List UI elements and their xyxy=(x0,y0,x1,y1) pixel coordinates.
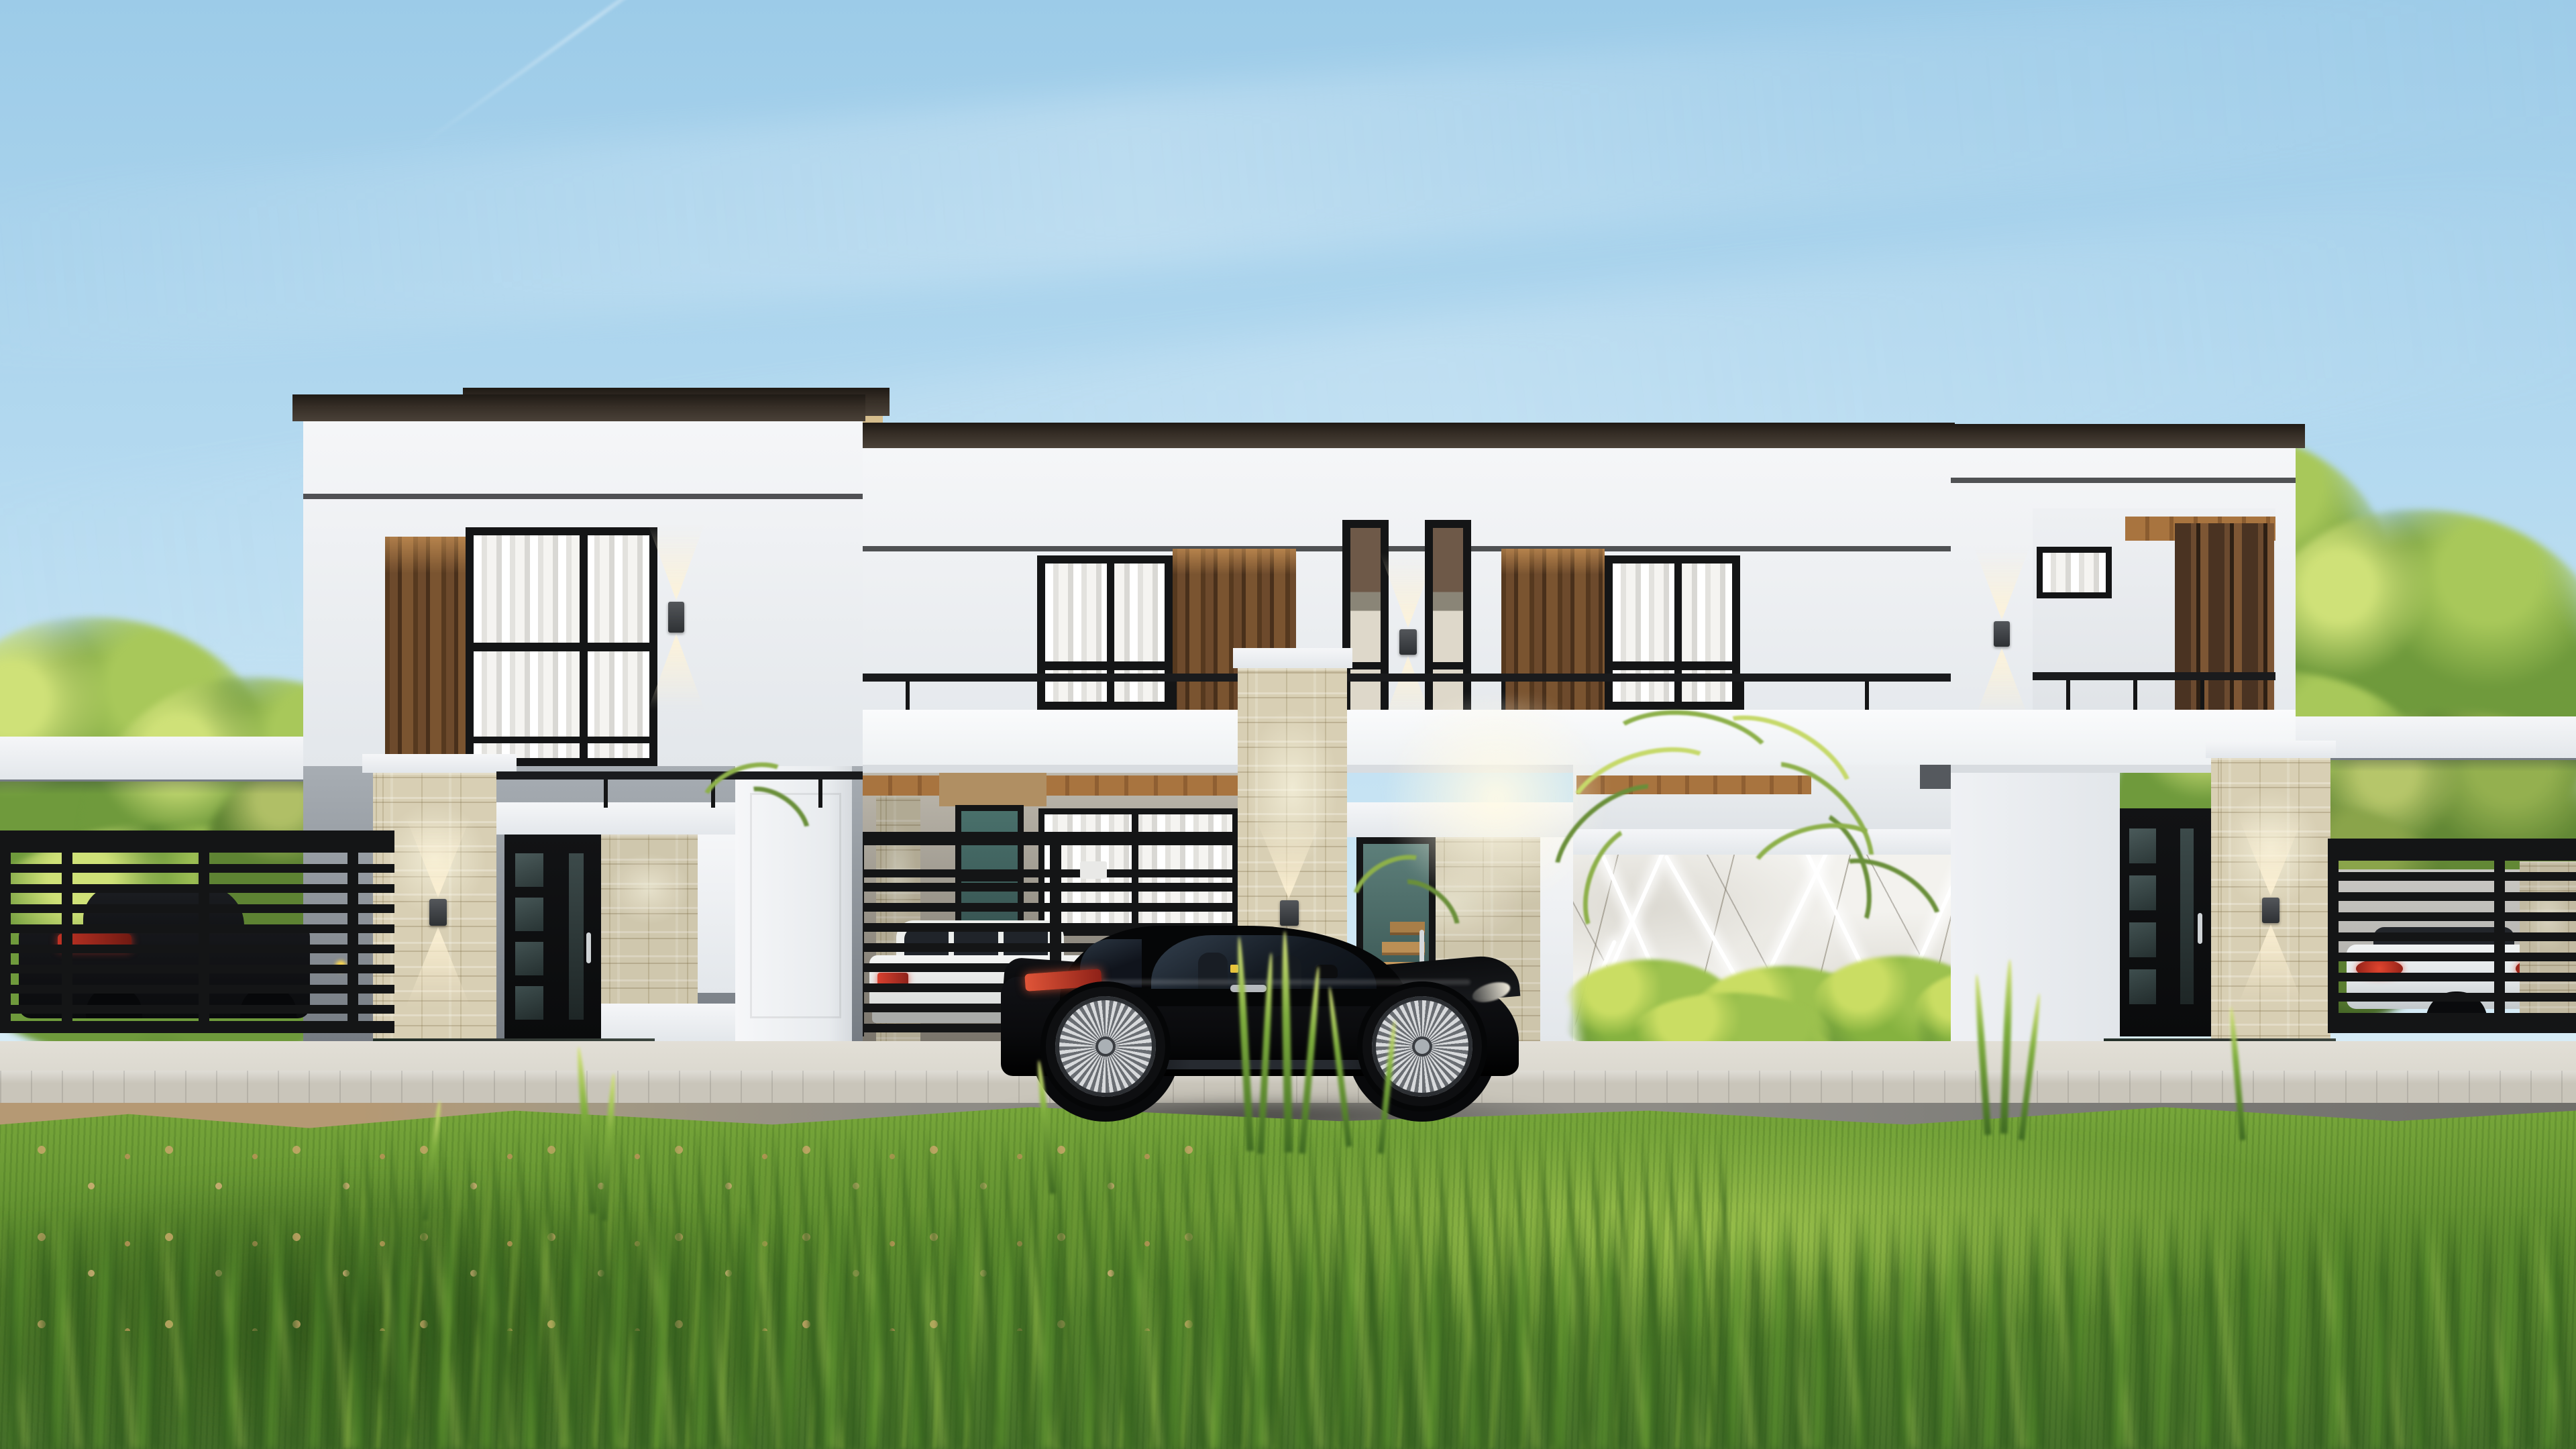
wood-accent-panel xyxy=(1501,549,1605,710)
fence-slats xyxy=(0,844,394,1021)
right-entry-door xyxy=(2120,808,2211,1036)
wheel-hub xyxy=(1412,1036,1432,1057)
coupe-wheel xyxy=(1357,981,1487,1112)
door-glass-pane xyxy=(2129,828,2156,863)
foreground-grass-near xyxy=(0,1207,2576,1449)
right-balcony-rail xyxy=(2033,672,2275,680)
left-tower-sconce xyxy=(668,602,684,633)
center-right-window xyxy=(1605,555,1740,710)
stone-lintel xyxy=(939,773,1046,806)
fence-post xyxy=(2494,839,2505,1033)
left-tower-window xyxy=(466,527,657,766)
stage xyxy=(0,0,2576,1449)
railing-post xyxy=(2200,680,2204,714)
fence-post xyxy=(0,830,11,1033)
left-tower-reveal-line xyxy=(303,494,863,499)
center-reveal-line xyxy=(852,546,1951,551)
door-sidelight xyxy=(2180,828,2194,1004)
left-tower-roof-fascia xyxy=(292,394,865,421)
stone-pillar-cap xyxy=(362,754,517,773)
fence-post xyxy=(62,830,72,1033)
right-tower-reveal-line xyxy=(1951,478,2296,483)
right-tower-sconce xyxy=(1994,621,2010,647)
right-tower-roof-fascia xyxy=(1940,424,2305,448)
gate-lock-box xyxy=(1080,861,1107,879)
wood-louver-screen xyxy=(2175,523,2274,714)
railing-post xyxy=(818,780,822,808)
window-transom xyxy=(1613,661,1732,670)
window-transom xyxy=(1433,662,1463,669)
wood-accent-panel xyxy=(385,537,466,766)
window-transom xyxy=(1350,662,1381,669)
fence-top-rail xyxy=(2328,839,2576,852)
center-roof-fascia xyxy=(848,423,1955,448)
balcony-railing xyxy=(860,674,1951,682)
coupe-wheel xyxy=(1040,981,1171,1112)
narrow-slot-window xyxy=(1342,520,1389,724)
left-door-portal-jamb xyxy=(698,835,735,993)
left-entry-door xyxy=(504,835,601,1041)
carport-wood-soffit xyxy=(863,775,1240,796)
center-left-window xyxy=(1037,555,1173,710)
door-glass-pane xyxy=(2129,922,2156,957)
window-transom xyxy=(474,643,649,651)
fence-slats xyxy=(2328,852,2576,1021)
wheel-hub xyxy=(1095,1036,1116,1057)
door-handle xyxy=(586,932,591,963)
shadow-slit xyxy=(1920,765,1951,789)
right-tower-window xyxy=(2037,547,2112,598)
stone-pillar-cap xyxy=(1233,648,1352,668)
railing-post xyxy=(604,780,608,808)
left-porch-stone-wall xyxy=(600,835,698,1004)
door-glass-pane xyxy=(2129,969,2156,1004)
left-balcony-rail xyxy=(496,771,863,780)
railing-post xyxy=(2133,680,2137,714)
door-glass-pane xyxy=(515,898,543,931)
pillar-wall-sconce xyxy=(2262,898,2279,923)
narrow-slot-window xyxy=(1425,520,1471,724)
balcony-rail-bar xyxy=(474,737,649,743)
fence-bottom-rail xyxy=(2328,1021,2576,1033)
door-sidelight xyxy=(569,853,584,1020)
door-handle xyxy=(2198,913,2202,944)
door-glass-pane xyxy=(515,853,543,887)
fence-bottom-rail xyxy=(0,1021,394,1033)
fence-post xyxy=(2328,839,2339,1033)
door-glass-pane xyxy=(515,942,543,975)
architectural-render-scene xyxy=(0,0,2576,1449)
door-glass-pane xyxy=(515,986,543,1020)
fence-top-rail xyxy=(0,830,394,844)
railing-post xyxy=(2066,680,2070,714)
pillar-wall-sconce xyxy=(429,899,447,926)
left-door-portal-lintel xyxy=(487,802,735,835)
fence-post xyxy=(199,830,209,1033)
stone-pillar-cap xyxy=(2206,741,2336,758)
window-transom xyxy=(1045,661,1165,670)
interior-warning-tag xyxy=(1230,965,1238,973)
door-glass-pane xyxy=(2129,875,2156,910)
left-door-portal-sill xyxy=(590,1004,735,1041)
left-perimeter-fence xyxy=(0,830,394,1033)
coupe-door-handle xyxy=(1230,985,1267,992)
fence-post xyxy=(347,830,358,1033)
right-perimeter-fence xyxy=(2328,839,2576,1033)
center-wall-sconce xyxy=(1399,629,1417,655)
